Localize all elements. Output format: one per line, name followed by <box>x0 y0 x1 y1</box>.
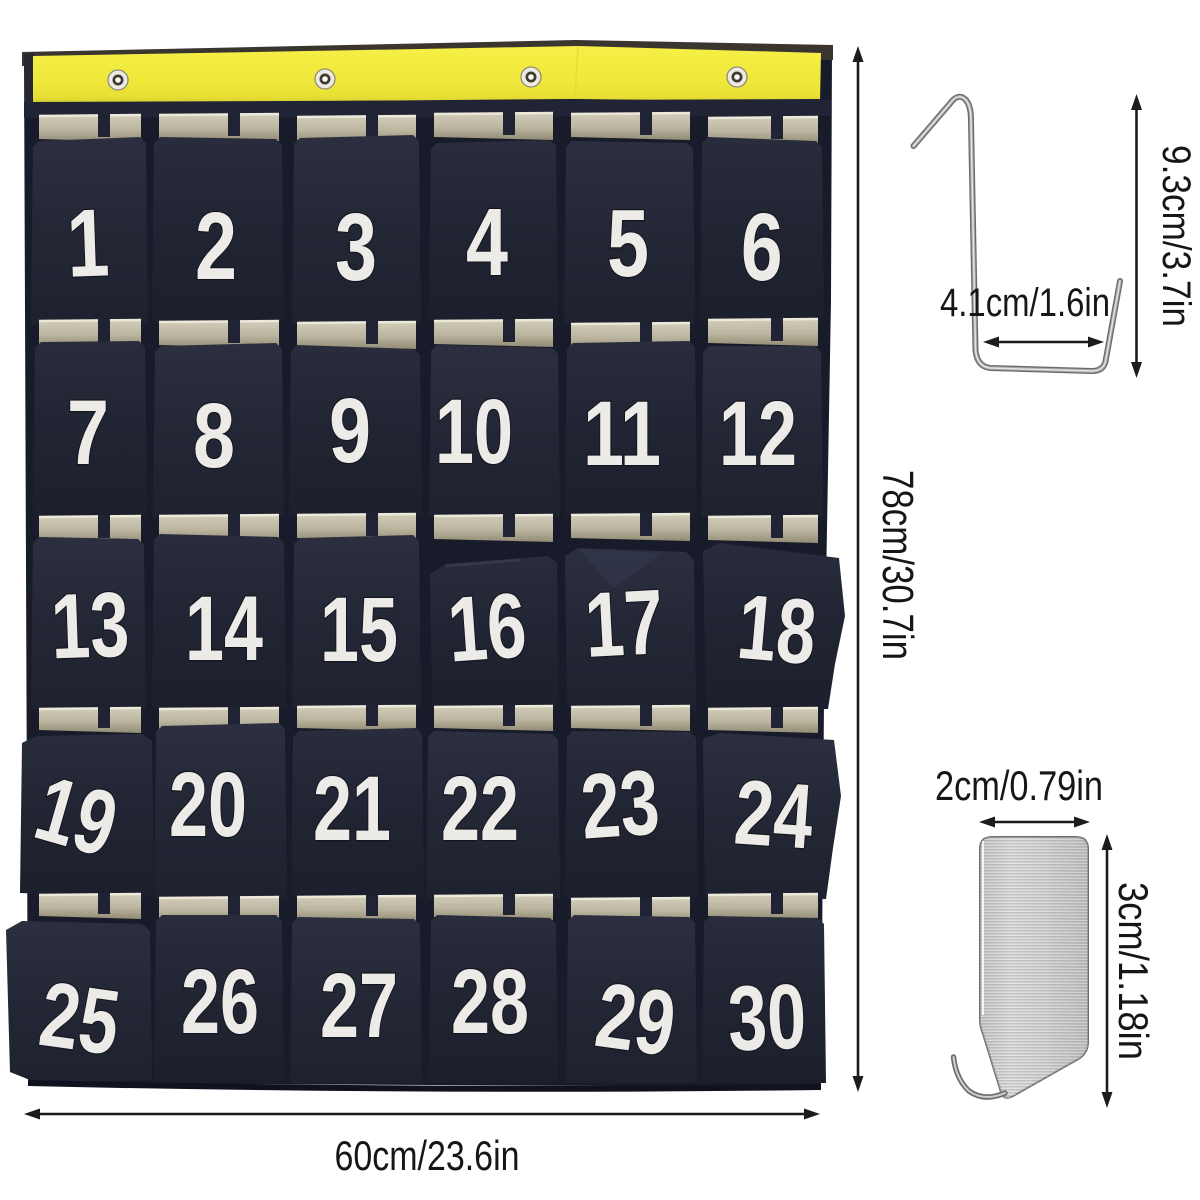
svg-text:3cm/1.18in: 3cm/1.18in <box>1110 882 1157 1060</box>
svg-text:30: 30 <box>726 966 808 1071</box>
svg-text:5: 5 <box>607 190 649 297</box>
svg-text:10: 10 <box>435 381 513 483</box>
svg-text:2cm/0.79in: 2cm/0.79in <box>935 762 1103 809</box>
svg-text:24: 24 <box>731 761 816 868</box>
svg-text:26: 26 <box>181 951 259 1053</box>
svg-text:4: 4 <box>466 189 508 296</box>
svg-text:13: 13 <box>49 574 131 679</box>
svg-text:1: 1 <box>65 189 111 297</box>
svg-text:7: 7 <box>67 382 109 484</box>
svg-text:60cm/23.6in: 60cm/23.6in <box>335 1132 520 1179</box>
svg-text:4.1cm/1.6in: 4.1cm/1.6in <box>940 281 1110 325</box>
svg-text:21: 21 <box>313 758 391 860</box>
svg-text:29: 29 <box>590 964 681 1076</box>
svg-text:9.3cm/3.7in: 9.3cm/3.7in <box>1154 145 1198 327</box>
svg-text:23: 23 <box>578 751 663 858</box>
svg-text:2: 2 <box>195 193 237 300</box>
svg-text:11: 11 <box>583 383 661 485</box>
svg-text:22: 22 <box>441 758 519 860</box>
svg-text:28: 28 <box>451 951 529 1053</box>
svg-text:12: 12 <box>719 383 797 485</box>
svg-text:3: 3 <box>335 194 377 301</box>
svg-text:16: 16 <box>445 574 530 681</box>
svg-text:78cm/30.7in: 78cm/30.7in <box>873 470 922 660</box>
svg-text:15: 15 <box>320 579 398 681</box>
svg-text:9: 9 <box>329 380 371 482</box>
svg-text:17: 17 <box>582 571 665 677</box>
svg-text:25: 25 <box>34 963 125 1075</box>
svg-text:18: 18 <box>734 576 821 684</box>
svg-text:27: 27 <box>320 955 398 1057</box>
svg-text:14: 14 <box>185 578 263 680</box>
svg-text:6: 6 <box>739 193 785 301</box>
svg-text:20: 20 <box>169 754 247 856</box>
svg-text:8: 8 <box>193 385 235 487</box>
